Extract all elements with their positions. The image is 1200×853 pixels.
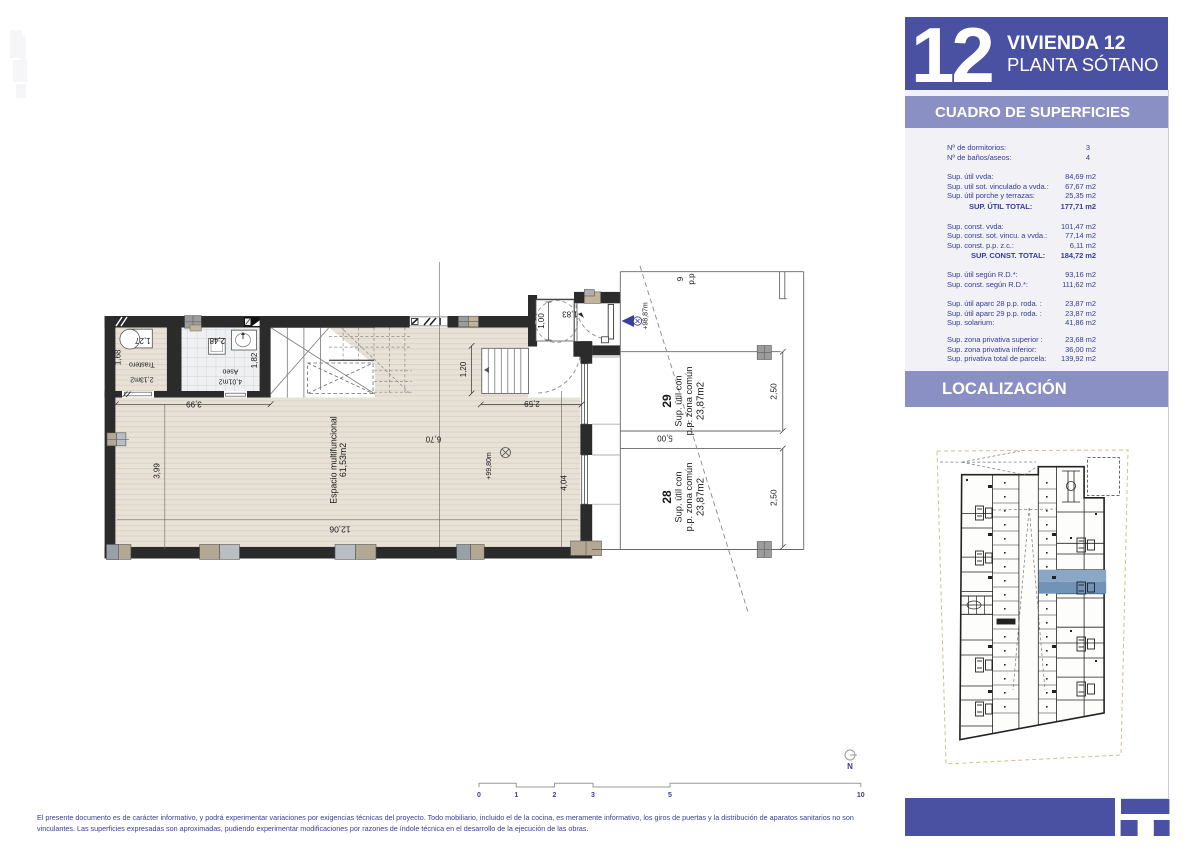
svg-text:2,13m2: 2,13m2: [130, 376, 153, 383]
svg-text:1,83: 1,83: [562, 310, 578, 319]
svg-text:29: 29: [660, 394, 674, 408]
svg-text:3,99: 3,99: [186, 399, 202, 408]
svg-text:Sup. útil con: Sup. útil con: [674, 375, 684, 426]
svg-text:+98,87m: +98,87m: [643, 302, 650, 330]
svg-text:12,06: 12,06: [329, 525, 351, 535]
svg-text:p.p. zona común: p.p. zona común: [684, 367, 694, 436]
svg-text:2,50: 2,50: [769, 383, 779, 400]
svg-text:2,59: 2,59: [524, 399, 540, 408]
svg-text:p.p: p.p: [687, 273, 696, 285]
svg-text:1,68: 1,68: [114, 349, 123, 365]
svg-text:p.p. zona común: p.p. zona común: [684, 463, 694, 532]
svg-text:+99,80m: +99,80m: [486, 452, 493, 480]
svg-text:1,27: 1,27: [135, 336, 151, 345]
svg-text:Trastero: Trastero: [129, 361, 155, 368]
svg-text:1,82: 1,82: [250, 352, 259, 368]
svg-text:Espacio multifuncional: Espacio multifuncional: [329, 416, 339, 504]
svg-text:1,20: 1,20: [459, 361, 468, 377]
svg-text:1,00: 1,00: [537, 313, 546, 329]
svg-text:Sup. útil con: Sup. útil con: [674, 471, 684, 522]
svg-text:4,04: 4,04: [560, 475, 569, 491]
svg-text:2,48: 2,48: [209, 336, 225, 345]
svg-text:3,99: 3,99: [153, 463, 162, 479]
svg-text:10: 10: [857, 792, 865, 799]
svg-text:4,01m2: 4,01m2: [219, 378, 242, 385]
svg-text:5: 5: [668, 792, 672, 799]
svg-text:0: 0: [477, 792, 481, 799]
svg-text:2,50: 2,50: [769, 489, 779, 506]
svg-text:2: 2: [553, 792, 557, 799]
svg-text:23,87m2: 23,87m2: [696, 478, 707, 516]
svg-text:28: 28: [660, 490, 674, 504]
svg-text:5,00: 5,00: [657, 434, 673, 443]
svg-text:6,70: 6,70: [425, 435, 441, 444]
svg-text:1: 1: [514, 792, 518, 799]
svg-text:N: N: [847, 762, 853, 771]
svg-text:61,53m2: 61,53m2: [338, 443, 348, 477]
svg-text:23,87m2: 23,87m2: [696, 382, 707, 420]
svg-text:3: 3: [591, 792, 595, 799]
svg-text:Aseo: Aseo: [222, 368, 238, 375]
svg-text:9: 9: [676, 276, 685, 281]
